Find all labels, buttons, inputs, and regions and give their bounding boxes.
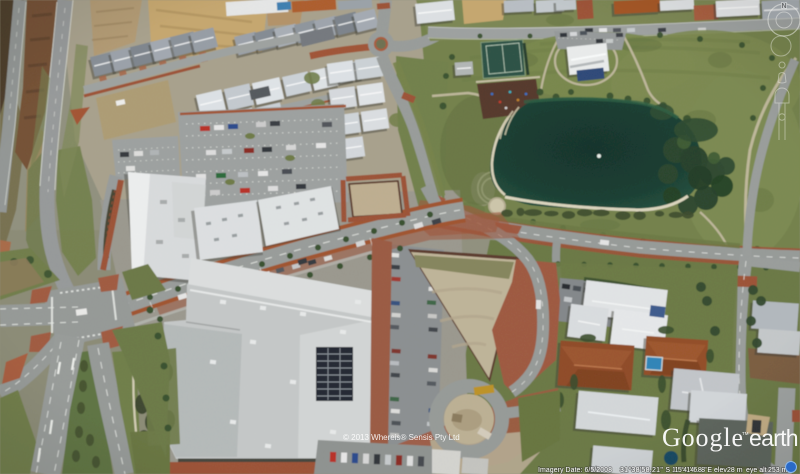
svg-text:Google: Google (662, 423, 743, 452)
svg-text:28 m: 28 m (727, 467, 743, 474)
svg-text:N: N (781, 3, 786, 10)
svg-text:© 2013 Whereis® Sensis Pty Ltd: © 2013 Whereis® Sensis Pty Ltd (343, 433, 460, 442)
svg-text:TM: TM (742, 431, 749, 436)
svg-text:31°38'58.21" S: 31°38'58.21" S (620, 466, 670, 474)
svg-text:earth: earth (749, 425, 798, 451)
svg-text:elev: elev (714, 467, 727, 474)
svg-text:115°41'46.88" E: 115°41'46.88" E (672, 466, 712, 474)
svg-text:Imagery Date: 6/5/2008: Imagery Date: 6/5/2008 (538, 467, 612, 474)
svg-text:253 m: 253 m (768, 467, 788, 474)
svg-text:eye alt: eye alt (746, 467, 767, 474)
